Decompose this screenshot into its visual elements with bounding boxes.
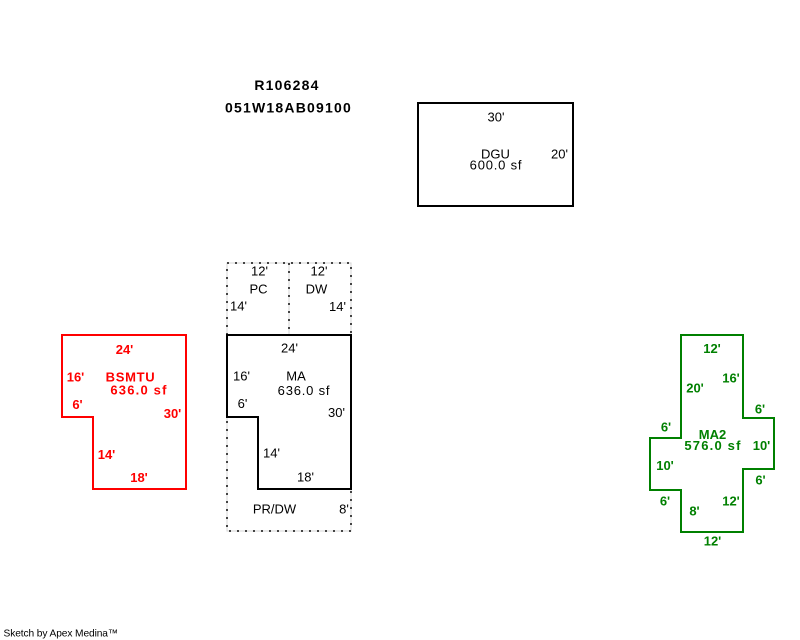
svg-text:Sketch by Apex Medina™: Sketch by Apex Medina™ [4, 629, 118, 640]
svg-text:24': 24' [281, 341, 298, 356]
svg-text:12': 12' [722, 494, 740, 509]
svg-text:30': 30' [488, 110, 505, 125]
svg-text:16': 16' [67, 370, 85, 385]
svg-text:20': 20' [551, 147, 568, 162]
svg-text:14': 14' [263, 446, 280, 461]
svg-text:10': 10' [656, 458, 674, 473]
svg-text:051W18AB09100: 051W18AB09100 [225, 100, 352, 116]
svg-text:6': 6' [755, 402, 765, 417]
svg-text:636.0 sf: 636.0 sf [278, 383, 331, 398]
svg-text:18': 18' [130, 470, 148, 485]
svg-text:6': 6' [755, 473, 765, 488]
svg-text:6': 6' [72, 397, 82, 412]
svg-text:6': 6' [238, 396, 248, 411]
svg-text:20': 20' [686, 381, 704, 396]
svg-text:24': 24' [116, 342, 134, 357]
svg-text:8': 8' [339, 502, 349, 517]
svg-text:PR/DW: PR/DW [253, 502, 297, 517]
svg-text:DW: DW [306, 282, 328, 297]
svg-text:30': 30' [164, 406, 182, 421]
svg-text:14': 14' [98, 447, 116, 462]
svg-text:10': 10' [753, 438, 771, 453]
svg-text:600.0 sf: 600.0 sf [470, 158, 523, 173]
svg-text:14': 14' [329, 299, 346, 314]
svg-text:8': 8' [689, 504, 699, 519]
svg-text:14': 14' [230, 299, 247, 314]
svg-text:6': 6' [661, 420, 671, 435]
svg-text:16': 16' [233, 369, 250, 384]
svg-text:636.0 sf: 636.0 sf [110, 383, 167, 398]
svg-text:12': 12' [703, 341, 721, 356]
svg-text:6': 6' [660, 494, 670, 509]
svg-text:12': 12' [251, 264, 268, 279]
svg-text:PC: PC [249, 282, 267, 297]
svg-text:12': 12' [704, 534, 722, 549]
svg-text:16': 16' [722, 371, 740, 386]
svg-text:R106284: R106284 [254, 77, 319, 93]
svg-text:12': 12' [311, 264, 328, 279]
svg-text:576.0 sf: 576.0 sf [684, 438, 741, 453]
svg-text:18': 18' [297, 470, 314, 485]
svg-text:MA: MA [286, 369, 306, 384]
svg-text:30': 30' [328, 405, 345, 420]
